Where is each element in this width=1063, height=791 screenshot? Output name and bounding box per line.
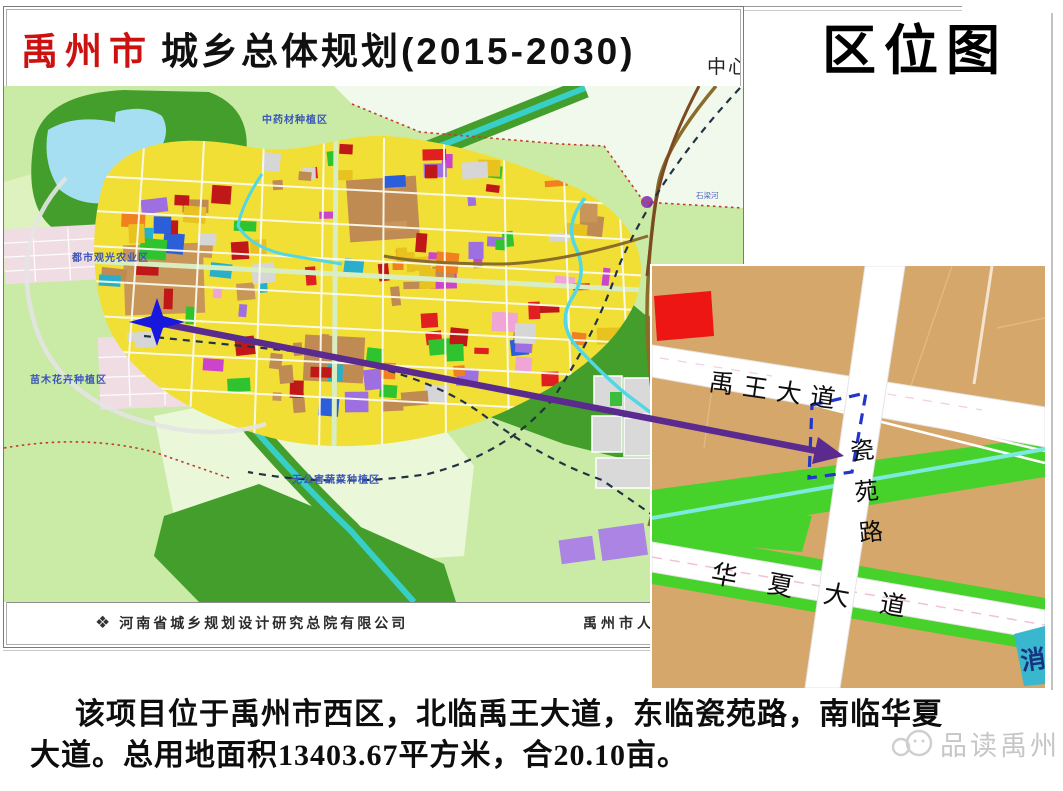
land-use-block [514,323,536,344]
land-use-block [183,205,207,224]
land-use-block [272,392,281,401]
land-use-block [345,392,369,413]
land-use-block [238,304,247,317]
institute-logo-icon: ❖ [95,614,110,631]
fire-station-label-partial: 消 [1019,645,1045,676]
frame-bottom-line [3,650,744,651]
right-edge-rule [1051,13,1053,690]
reservoir-lake-small [115,109,166,150]
plan-title-partial-text: 中心 [707,52,740,79]
inset-map-svg: 消 禹王大道 瓷苑路 华夏大道 [652,266,1045,688]
label-vegetable-zone: 无公害蔬菜种植区 [291,473,380,486]
attribution-designer: 河南省城乡规划设计研究总院有限公司 [119,613,408,633]
land-use-block [211,185,232,205]
land-use-block [580,203,598,223]
watermark-logo-icon [888,726,934,762]
land-use-block [339,144,353,155]
land-use-block [425,165,437,179]
land-use-block [415,233,427,253]
land-use-block [515,356,533,372]
land-use-block [213,287,222,298]
plan-title: 禹州市城乡总体规划(2015-2030) [21,21,636,75]
red-building-parcel [654,291,714,341]
master-plan-map-frame: 禹州市城乡总体规划(2015-2030) 中心 [3,6,744,648]
land-use-block [236,282,255,300]
land-use-block [305,266,317,285]
land-use-block [384,175,406,188]
location-map-title: 区位图 [790,14,1040,76]
label-shiliang-river: 石梁河 [696,191,719,200]
plan-title-city: 禹州市 [21,31,153,72]
land-use-block [227,378,251,393]
land-use-block [474,348,489,355]
land-use-block [174,195,189,206]
label-seedling-flower-zone: 苗木花卉种植区 [30,373,107,386]
label-agri-sightseeing-zone: 都市观光农业区 [71,251,149,264]
land-use-block [421,313,439,328]
watermark-label: 品读禹州 [940,724,1060,763]
attribution-bar: ❖ 河南省城乡规划设计研究总院有限公司 禹州市人 [7,602,740,642]
land-use-block [422,149,446,161]
land-use-block [491,312,518,333]
watermark: 品读禹州 [888,724,1060,763]
attribution-government-partial: 禹州市人 [583,603,655,643]
land-use-block [462,162,488,180]
land-use-block [269,353,283,370]
land-use-block [428,338,450,356]
land-use-block [231,241,250,260]
land-use-block [385,221,407,231]
land-use-block [298,171,311,181]
land-use-block [453,365,465,376]
land-use-block [163,288,173,309]
land-use-block [495,239,506,250]
land-use-block [198,233,216,246]
land-use-block [467,196,476,206]
slide: 禹州市城乡总体规划(2015-2030) 中心 [0,0,1063,791]
plan-title-rest: 城乡总体规划(2015-2030) [161,31,636,72]
land-use-block [363,369,382,391]
land-use-block [293,342,303,356]
master-plan-map: 中药材种植区 都市观光农业区 苗木花卉种植区 无公害蔬菜种植区 石梁河 [4,86,743,602]
land-use-block [251,262,276,284]
label-herb-zone: 中药材种植区 [262,113,328,126]
land-use-block [401,391,429,407]
land-use-block [322,334,330,341]
land-use-block [449,327,469,346]
land-use-block [153,216,171,234]
plan-title-bar: 禹州市城乡总体规划(2015-2030) 中心 [7,10,740,86]
highway-interchange [641,196,653,208]
land-use-block [486,184,500,193]
location-inset-map: 消 禹王大道 瓷苑路 华夏大道 [650,264,1045,688]
land-use-block [203,358,224,372]
land-use-block [468,242,483,259]
